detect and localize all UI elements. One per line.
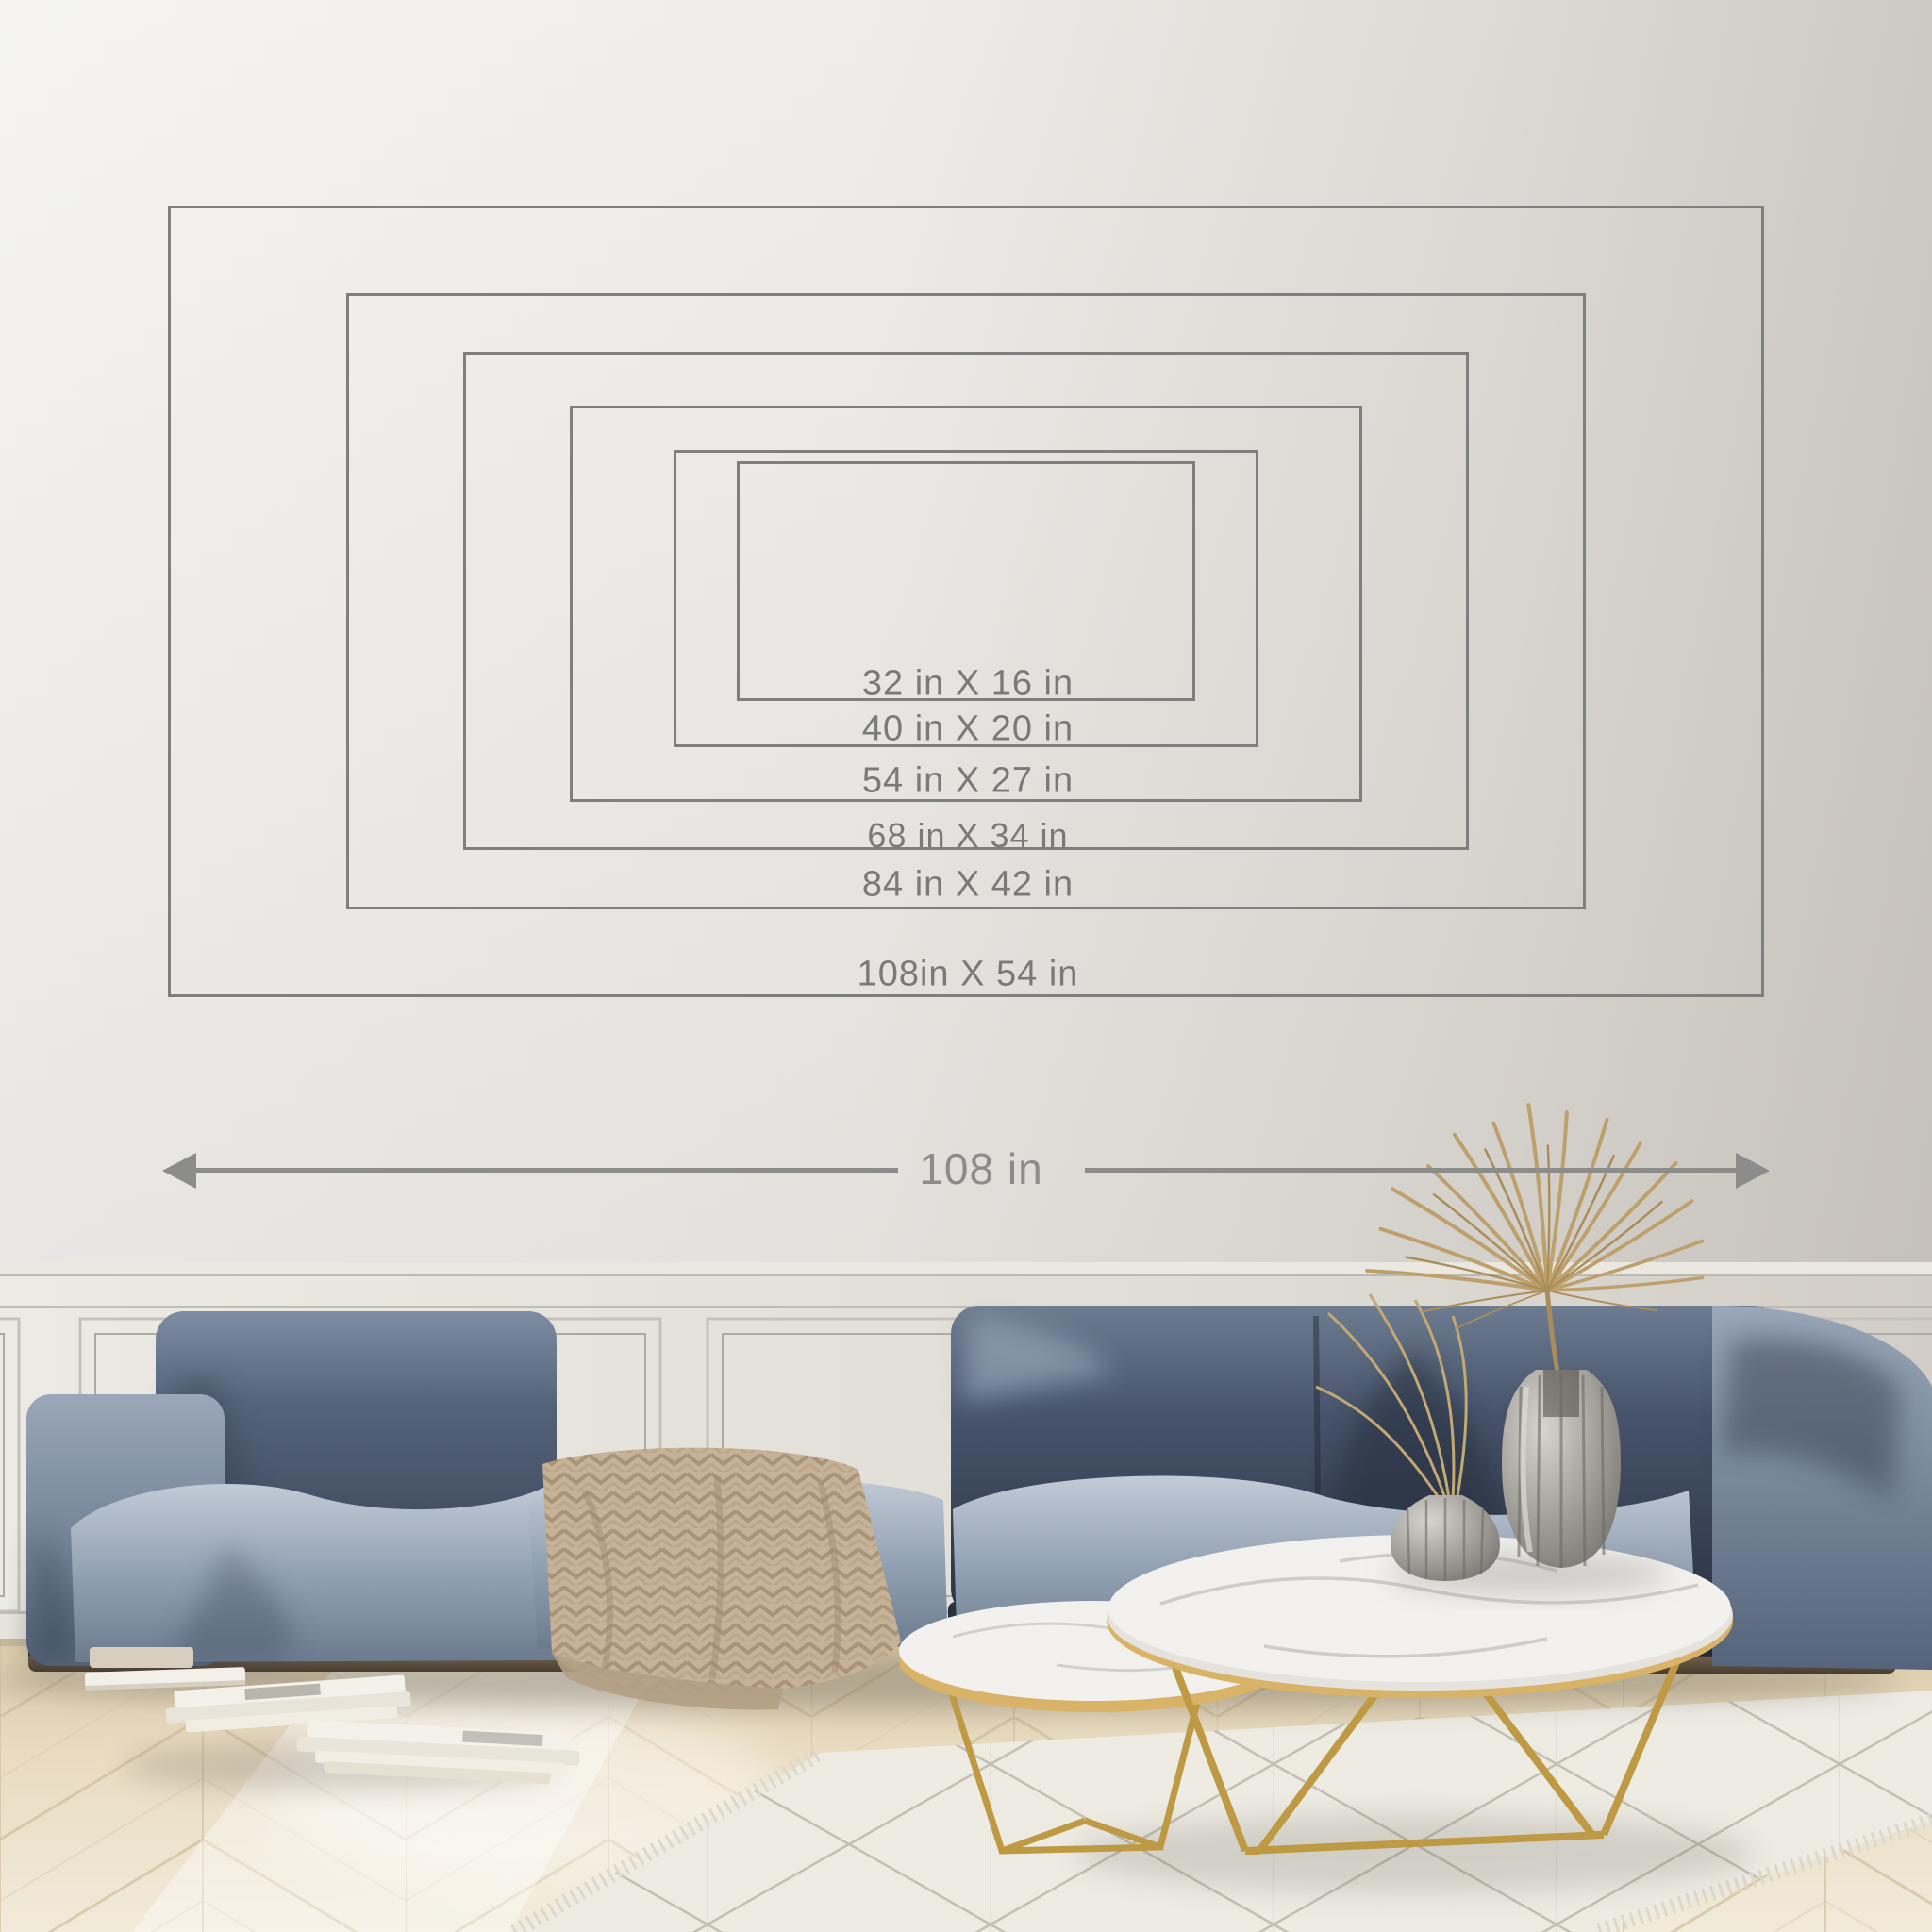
size-label-68x34: 68 in X 34 in — [867, 816, 1068, 856]
size-label-32x16: 32 in X 16 in — [862, 664, 1074, 705]
size-label-40x20: 40 in X 20 in — [862, 709, 1074, 750]
size-label-54x27: 54 in X 27 in — [862, 761, 1074, 802]
arrow-right-head-icon — [1736, 1153, 1770, 1189]
arrow-right-shaft — [1085, 1168, 1740, 1173]
size-label-84x42: 84 in X 42 in — [862, 865, 1074, 906]
product-size-guide-image: 32 in X 16 in 40 in X 20 in 54 in X 27 i… — [0, 0, 1932, 1932]
size-label-108x54: 108in X 54 in — [858, 955, 1079, 995]
width-arrow-label: 108 in — [919, 1143, 1042, 1194]
arrow-left-shaft — [185, 1168, 898, 1173]
size-chart-overlay: 32 in X 16 in 40 in X 20 in 54 in X 27 i… — [0, 0, 1932, 1932]
